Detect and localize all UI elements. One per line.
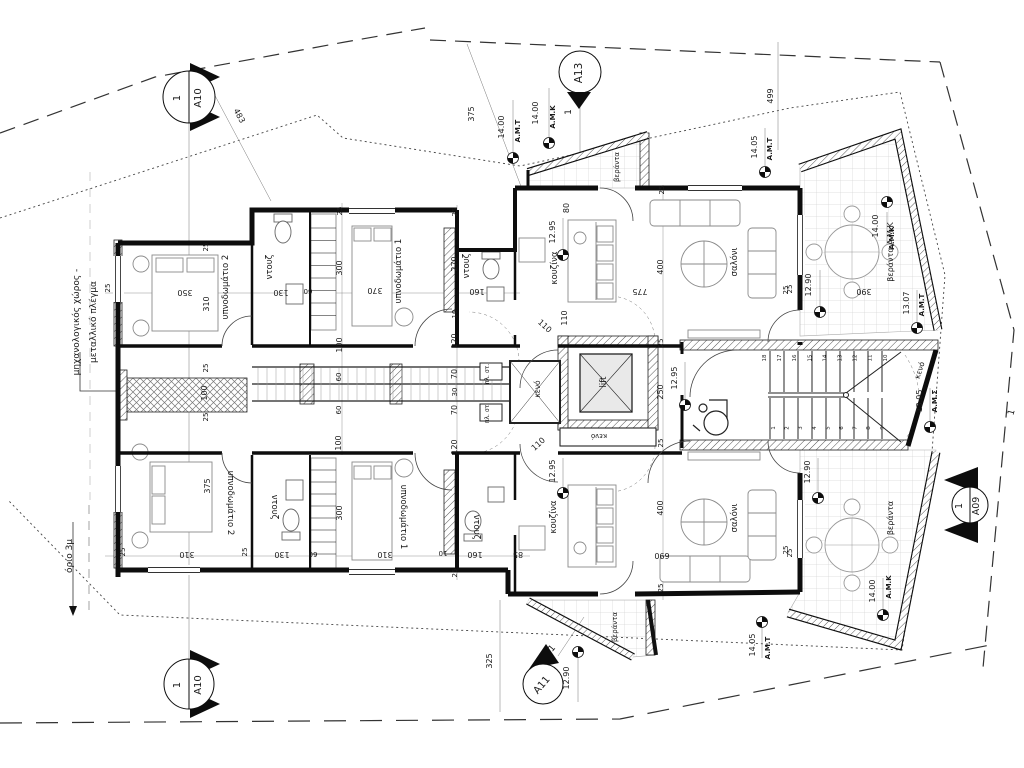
section-marker-a09: 1A09 (944, 467, 988, 543)
annotation-label: 25 (451, 569, 459, 578)
bridge (252, 367, 512, 401)
level-value: 12.95 (548, 221, 557, 244)
section-marker-a10: 1A10 (163, 63, 220, 131)
annotation-label: 375 (467, 106, 476, 121)
stair-step-number: 10 (883, 354, 889, 361)
stair-step-number: 8 (866, 426, 872, 430)
annotation-label: lift (599, 376, 609, 388)
kitchen-sink (574, 232, 586, 244)
level-datum-suffix: A.M.K (888, 226, 896, 250)
annotation-label: ντουζ (269, 495, 279, 520)
level-datum-suffix: A.M.K (549, 105, 557, 129)
annotation-label: 25 (786, 549, 794, 558)
stair-step-number: 2 (785, 426, 791, 430)
annotation-label: 60 (335, 406, 343, 415)
tv-unit (688, 330, 760, 338)
annotation-label: υπνοδωμάτιο 1 (394, 239, 404, 304)
annotation-label: υπνοδωμάτιο 1 (398, 485, 408, 550)
annotation-label: 25 (119, 548, 127, 557)
level-value: 12.90 (803, 461, 812, 484)
stair-step-number: 5 (825, 426, 831, 430)
section-marker-a11: A11 (523, 644, 563, 704)
floor-plan-canvas: 483375499111βεράνταβεράνταβεράνταβεράντα… (0, 0, 1024, 768)
sink (286, 480, 303, 500)
sink (488, 487, 504, 502)
annotation-label: 160 (467, 550, 482, 559)
floor-plan-page: 483375499111βεράνταβεράνταβεράνταβεράντα… (0, 0, 1024, 768)
stair-step-number: 6 (839, 426, 845, 430)
stair-treads (770, 351, 882, 439)
section-marker-a13: A13 (559, 51, 601, 109)
annotation-label: υπνοδωμάτιο 2 (225, 471, 235, 536)
tv-unit (688, 452, 760, 460)
leader-arrowheads (69, 387, 150, 616)
annotation-label: 300 (335, 505, 344, 520)
annotation-label: 60 (335, 373, 343, 382)
annotation-label: 25 (202, 413, 210, 422)
level-value: 14.00 (497, 116, 506, 139)
level-value: 13.07 (902, 292, 911, 315)
annotation-label: 1 (564, 109, 574, 115)
annotation-label: 25 (241, 548, 249, 557)
stair-step-number: 12 (853, 355, 859, 362)
annotation-label: 300 (335, 260, 344, 275)
stair-step-number: 16 (792, 354, 798, 361)
annotation-label: 25 (104, 284, 112, 293)
annotation-label: 110 (560, 310, 569, 325)
level-value: 12.95 (548, 460, 557, 483)
toilet (283, 509, 299, 531)
level-datum-suffix: A.M.Σ (931, 389, 939, 412)
level-value: 14.05 (750, 136, 759, 159)
section-arrow (567, 92, 591, 109)
section-number: 1 (172, 682, 183, 688)
stair-step-number: 14 (822, 354, 828, 361)
section-sheet: A10 (193, 675, 204, 695)
section-sheet: A13 (573, 63, 585, 84)
annotation-label: 120 (450, 333, 459, 348)
annotation-label: ντουζ (471, 515, 481, 540)
annotation-label: πλ. στ. (484, 403, 491, 423)
annotation-label: 1 (1006, 408, 1017, 416)
annotation-label: 85 (513, 550, 523, 559)
sofa (650, 200, 740, 226)
stair-step-number: 13 (838, 354, 844, 361)
annotation-label: 30 (451, 388, 459, 397)
annotation-label: 130 (274, 550, 289, 559)
annotation-label: 370 (367, 286, 382, 295)
sink (487, 287, 504, 301)
annotation-label: κενό (533, 380, 542, 398)
section-marker-a10: 1A10 (164, 650, 220, 718)
stair-numbers: 123456789181716151413121110 (762, 354, 889, 430)
annotation-label: 690 (654, 551, 669, 560)
stair-step-number: 18 (762, 354, 768, 361)
annotation-label: 25 (657, 339, 665, 348)
stair-step-number: 17 (777, 354, 783, 361)
annotation-label: 25 (658, 186, 666, 195)
annotation-label: 110 (530, 436, 547, 453)
annotation-label: 25 (336, 207, 344, 216)
level-value: 13.05 (915, 390, 924, 413)
annotation-label: 130 (273, 288, 288, 297)
annotation-label: 100 (334, 435, 343, 450)
annotation-label: όριο 3μ (64, 539, 75, 573)
level-value: 14.00 (871, 215, 880, 238)
annotation-label: βεράντα (886, 501, 895, 535)
stair-step-number: 3 (798, 426, 804, 430)
annotation-label: 310 (202, 296, 211, 311)
annotation-label: 120 (450, 439, 459, 454)
annotation-label: 110 (536, 318, 553, 335)
section-sheet: A10 (193, 88, 204, 108)
annotation-label: 400 (656, 259, 665, 274)
annotation-label: 25 (657, 439, 665, 448)
annotation-label: μηχανολογικός χώρος - (71, 269, 82, 376)
annotation-label: 25 (202, 364, 210, 373)
annotation-label: 70 (450, 369, 459, 379)
annotation-label: 499 (766, 88, 775, 103)
annotation-label: κενό (913, 360, 927, 380)
annotation-label: 775 (632, 287, 647, 296)
sofa (748, 228, 776, 298)
annotation-label: 390 (856, 287, 871, 296)
wardrobe (311, 214, 336, 330)
stair-step-number: 4 (812, 426, 818, 430)
level-value: 14.05 (748, 634, 757, 657)
toilet (483, 259, 499, 279)
stair-step-number: 15 (807, 354, 813, 361)
annotation-label: 160 (469, 287, 484, 296)
section-number: 1 (954, 503, 965, 509)
annotation-label: 400 (656, 500, 665, 515)
stair-step-number: 7 (853, 426, 859, 430)
annotation-label: 100 (200, 385, 209, 400)
annotation-label: 25 (202, 243, 210, 252)
stair-step-number: 9 (880, 426, 886, 430)
annotation-label: 100 (335, 337, 344, 352)
annotation-label: υπνοδωμάτιο 2 (221, 255, 231, 320)
wheelchair-icon (693, 400, 728, 435)
annotation-label: 25 (657, 584, 665, 593)
level-value: 12.95 (670, 367, 679, 390)
annotation-label: βεράντα (613, 152, 621, 182)
annotation-label: 325 (485, 653, 494, 668)
sofa (748, 490, 776, 560)
stair-step-number: 1 (771, 426, 777, 430)
mechanical-space (127, 378, 247, 412)
level-datum-suffix: A.M.T (766, 137, 774, 160)
annotation-label: 250 (656, 384, 665, 399)
annotation-label: 10 (439, 549, 448, 557)
level-value: 14.00 (868, 580, 877, 603)
level-datum-suffix: A.M.T (764, 636, 772, 659)
level-datum-suffix: A.M.T (514, 119, 522, 142)
level-value: 14.00 (531, 102, 540, 125)
section-number: 1 (172, 95, 183, 101)
annotation-label: 60 (304, 287, 313, 295)
annotation-label: σαλόνι (729, 503, 740, 532)
annotation-label: πλ. στ. (484, 364, 491, 384)
annotation-label: 270 (450, 256, 459, 271)
annotation-label: 483 (232, 107, 247, 125)
sofa (660, 556, 750, 582)
core (252, 351, 901, 446)
kitchen-sink (574, 542, 586, 554)
level-datum-suffix: A.M.T (918, 293, 926, 316)
annotation-label: ντουζ (265, 254, 275, 279)
toilet (275, 221, 291, 243)
annotation-label: 310 (377, 550, 392, 559)
section-sheet: A09 (971, 497, 982, 516)
annotation-label: 10 (451, 310, 459, 319)
annotation-label: 25 (451, 208, 459, 217)
annotation-label: κουζίνα (549, 500, 559, 533)
annotation-label: σαλόνι (729, 247, 740, 276)
level-datum-suffix: A.M.K (885, 575, 893, 599)
annotation-label: 70 (450, 405, 459, 415)
annotation-label: 350 (177, 288, 192, 297)
annotation-label: κενό (591, 432, 607, 440)
level-value: 12.90 (804, 274, 813, 297)
annotation-label: 310 (179, 550, 194, 559)
annotation-label: 25 (786, 285, 794, 294)
annotation-label: 80 (562, 203, 571, 213)
annotation-label: 375 (203, 478, 212, 493)
annotation-label: βεράντα (611, 612, 619, 642)
stair-step-number: 11 (868, 355, 874, 362)
annotation-label: μεταλλικό πλέγμα (88, 281, 99, 363)
annotation-label: ντουζ (462, 253, 472, 278)
